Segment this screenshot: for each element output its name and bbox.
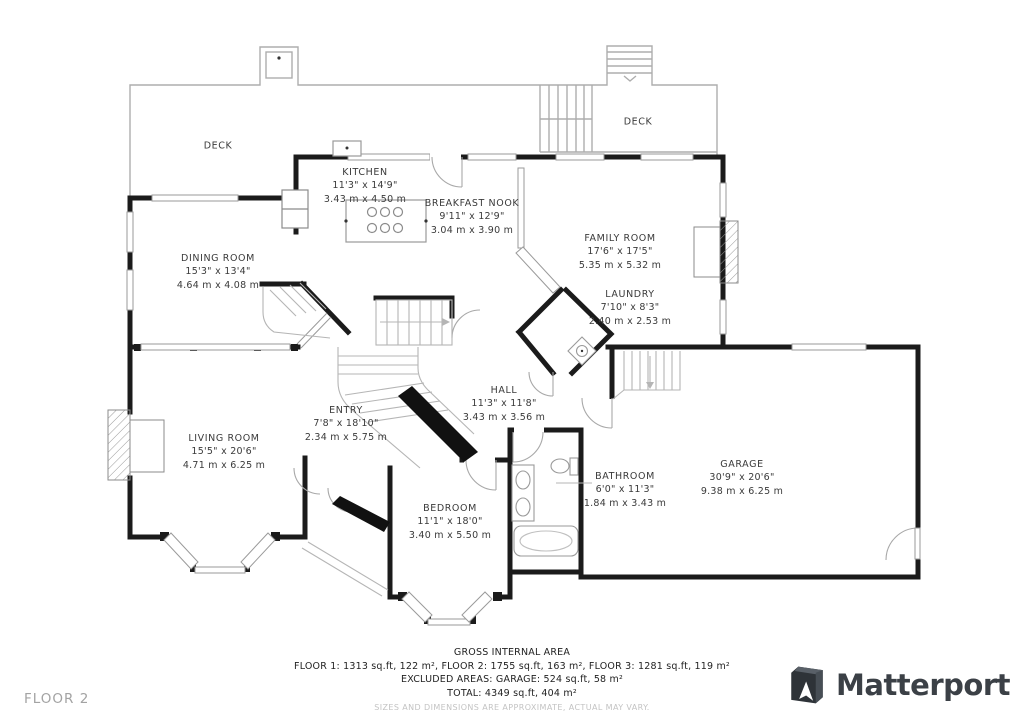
bay-window-posts xyxy=(134,344,502,624)
area-summary-title: GROSS INTERNAL AREA xyxy=(0,646,1024,660)
room-label-entry: ENTRY7'8" x 18'10"2.34 m x 5.75 m xyxy=(305,404,387,444)
room-label-breakfast-nook: BREAKFAST NOOK9'11" x 12'9"3.04 m x 3.90… xyxy=(425,197,519,237)
chimney-dot xyxy=(277,56,280,59)
room-label-living-room: LIVING ROOM15'5" x 20'6"4.71 m x 6.25 m xyxy=(183,432,265,472)
room-label-hall: HALL11'3" x 11'8"3.43 m x 3.56 m xyxy=(463,384,545,424)
kitchen-island xyxy=(344,200,427,242)
stairs-garage-level xyxy=(613,351,680,399)
matterport-icon xyxy=(786,664,828,706)
washer xyxy=(568,337,596,365)
room-label-deck-left: DECK xyxy=(204,139,233,152)
room-label-garage: GARAGE30'9" x 20'6"9.38 m x 6.25 m xyxy=(701,458,783,498)
refrigerator xyxy=(282,190,308,228)
fireplace-living xyxy=(108,410,164,480)
room-label-kitchen: KITCHEN11'3" x 14'9"3.43 m x 4.50 m xyxy=(324,166,406,206)
matterport-wordmark: Matterport xyxy=(836,668,1010,702)
bathroom-fixtures xyxy=(512,458,578,556)
floor-indicator: FLOOR 2 xyxy=(24,691,89,707)
floor-plan-page: DECK DECK KITCHEN11'3" x 14'9"3.43 m x 4… xyxy=(0,0,1024,723)
stairs-dining xyxy=(263,283,330,338)
room-label-bathroom: BATHROOM6'0" x 11'3"1.84 m x 3.43 m xyxy=(584,470,666,510)
room-label-dining-room: DINING ROOM15'3" x 13'4"4.64 m x 4.08 m xyxy=(177,252,259,292)
matterport-logo: Matterport xyxy=(786,664,1010,706)
deck-grill xyxy=(333,141,361,156)
room-label-bedroom: BEDROOM11'1" x 18'0"3.40 m x 5.50 m xyxy=(409,502,491,542)
porch-lines xyxy=(302,542,388,596)
room-label-laundry: LAUNDRY7'10" x 8'3"2.40 m x 2.53 m xyxy=(589,288,671,328)
floor-plan-drawing xyxy=(0,0,1024,723)
room-label-family-room: FAMILY ROOM17'6" x 17'5"5.35 m x 5.32 m xyxy=(579,232,661,272)
fireplace-family xyxy=(694,221,738,283)
room-label-deck-right: DECK xyxy=(624,115,653,128)
